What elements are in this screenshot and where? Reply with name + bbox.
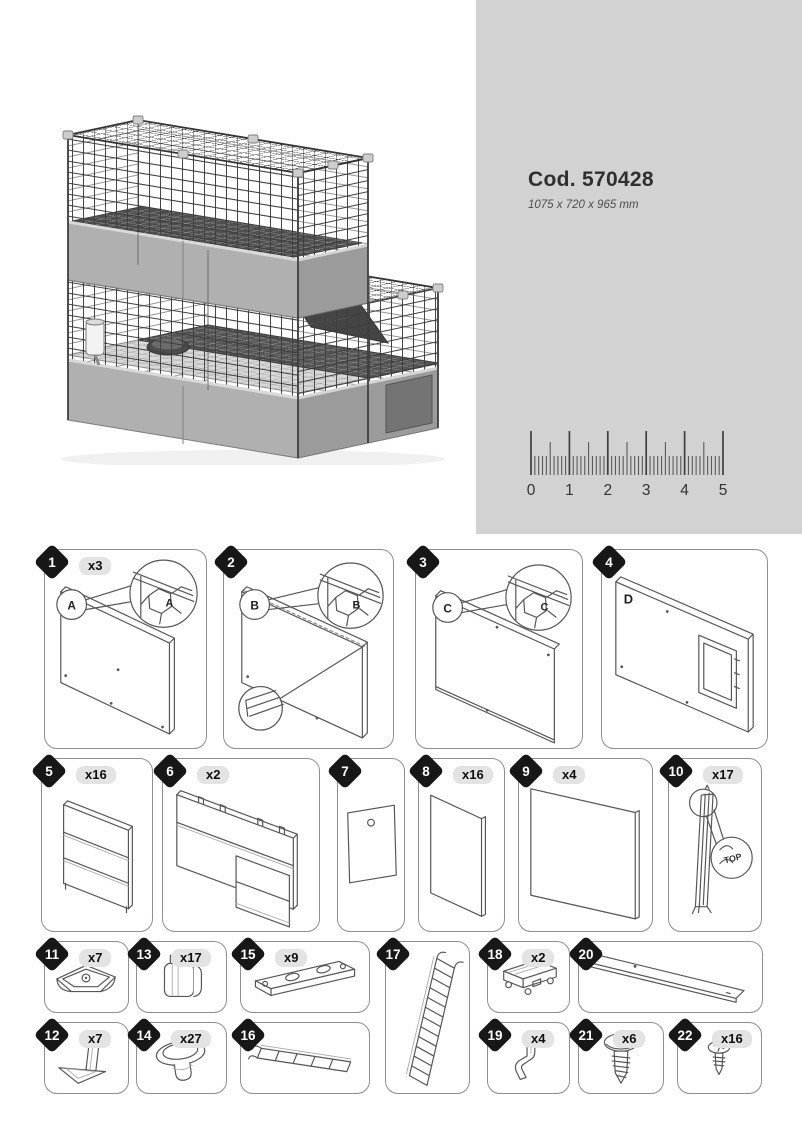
part-13-quantity: x17 (171, 949, 211, 967)
part-6-number-badge: 6 (152, 753, 189, 790)
part-13-number-badge: 13 (126, 936, 163, 973)
part-18-number-badge: 18 (477, 936, 514, 973)
part-5-illustration (42, 759, 152, 931)
part-card-3: C C 3 (415, 549, 583, 749)
part-card-7: 7 (337, 758, 405, 932)
part-card-17: 17 (385, 941, 470, 1094)
part-1-detail-letter: A (166, 598, 174, 610)
part-15-quantity: x9 (275, 949, 307, 967)
product-code: Cod. 570428 (528, 168, 654, 192)
part-card-16: 16 (240, 1022, 370, 1094)
part-8-illustration (419, 759, 504, 931)
part-22-number-badge: 22 (667, 1017, 704, 1054)
part-19-quantity: x4 (522, 1030, 554, 1048)
part-card-5: 5 x16 (41, 758, 153, 932)
part-card-1: A A 1 x3 (44, 549, 207, 749)
part-6-quantity: x2 (197, 766, 229, 784)
part-card-11: 11 x7 (44, 941, 129, 1013)
part-card-8: 8 x16 (418, 758, 505, 932)
part-4-number-badge: 4 (591, 544, 628, 581)
product-info-panel: Cod. 570428 1075 x 720 x 965 mm 0 1 2 3 … (476, 0, 802, 534)
part-card-9: 9 x4 (518, 758, 653, 932)
part-4-panel-letter: D (624, 592, 633, 607)
part-card-13: 13 x17 (136, 941, 227, 1013)
part-2-panel-letter: B (250, 598, 259, 612)
part-4-illustration: D (602, 550, 767, 748)
part-12-quantity: x7 (79, 1030, 111, 1048)
part-5-quantity: x16 (76, 766, 116, 784)
part-10-illustration: TOP (669, 759, 761, 931)
part-card-14: 14 x27 (136, 1022, 227, 1094)
part-9-number-badge: 9 (508, 753, 545, 790)
part-18-quantity: x2 (522, 949, 554, 967)
part-card-15: 15 x9 (240, 941, 370, 1013)
product-dimensions: 1075 x 720 x 965 mm (528, 199, 639, 211)
part-19-number-badge: 19 (477, 1017, 514, 1054)
part-card-10: TOP 10 x17 (668, 758, 762, 932)
part-card-20: 20 (578, 941, 763, 1013)
part-10-quantity: x17 (703, 766, 743, 784)
part-9-illustration (519, 759, 652, 931)
part-card-4: D 4 (601, 549, 768, 749)
part-7-number-badge: 7 (327, 753, 364, 790)
part-card-2: B B 2 (223, 549, 394, 749)
part-6-illustration (163, 759, 319, 931)
part-5-number-badge: 5 (31, 753, 68, 790)
ruler-label-2: 2 (603, 482, 612, 499)
part-card-22: 22 x16 (677, 1022, 762, 1094)
part-card-6: 6 x2 (162, 758, 320, 932)
part-11-number-badge: 11 (34, 936, 71, 973)
ruler-label-1: 1 (565, 482, 574, 499)
scale-ruler: 0 1 2 3 4 5 (503, 423, 753, 513)
part-12-number-badge: 12 (34, 1017, 71, 1054)
part-2-detail-letter: B (353, 599, 361, 611)
ruler-label-5: 5 (719, 482, 728, 499)
part-17-number-badge: 17 (375, 936, 412, 973)
part-1-quantity: x3 (79, 557, 111, 575)
part-16-number-badge: 16 (230, 1017, 267, 1054)
part-1-number-badge: 1 (34, 544, 71, 581)
part-9-quantity: x4 (553, 766, 585, 784)
part-22-quantity: x16 (712, 1030, 752, 1048)
part-20-illustration (579, 942, 762, 1012)
part-card-19: 19 x4 (487, 1022, 570, 1094)
part-3-number-badge: 3 (405, 544, 442, 581)
part-10-number-badge: 10 (658, 753, 695, 790)
part-card-12: 12 x7 (44, 1022, 129, 1094)
part-8-quantity: x16 (453, 766, 493, 784)
part-1-illustration: A A (45, 550, 206, 748)
part-21-quantity: x6 (613, 1030, 645, 1048)
part-2-number-badge: 2 (213, 544, 250, 581)
part-14-number-badge: 14 (126, 1017, 163, 1054)
part-card-18: 18 x2 (487, 941, 570, 1013)
part-8-number-badge: 8 (408, 753, 445, 790)
ruler-label-0: 0 (527, 482, 536, 499)
part-15-number-badge: 15 (230, 936, 267, 973)
part-2-illustration: B B (224, 550, 393, 748)
part-1-panel-letter: A (67, 598, 76, 612)
part-3-panel-letter: C (443, 601, 452, 615)
part-3-detail-letter: C (541, 601, 549, 613)
assembly-sheet-page: Cod. 570428 1075 x 720 x 965 mm 0 1 2 3 … (0, 0, 802, 1134)
part-3-illustration: C C (416, 550, 582, 748)
cage-product-illustration (28, 55, 468, 465)
part-11-quantity: x7 (79, 949, 111, 967)
part-card-21: 21 x6 (578, 1022, 664, 1094)
ruler-label-3: 3 (642, 482, 651, 499)
part-14-quantity: x27 (171, 1030, 211, 1048)
part-20-number-badge: 20 (568, 936, 605, 973)
ruler-label-4: 4 (680, 482, 689, 499)
part-21-number-badge: 21 (568, 1017, 605, 1054)
